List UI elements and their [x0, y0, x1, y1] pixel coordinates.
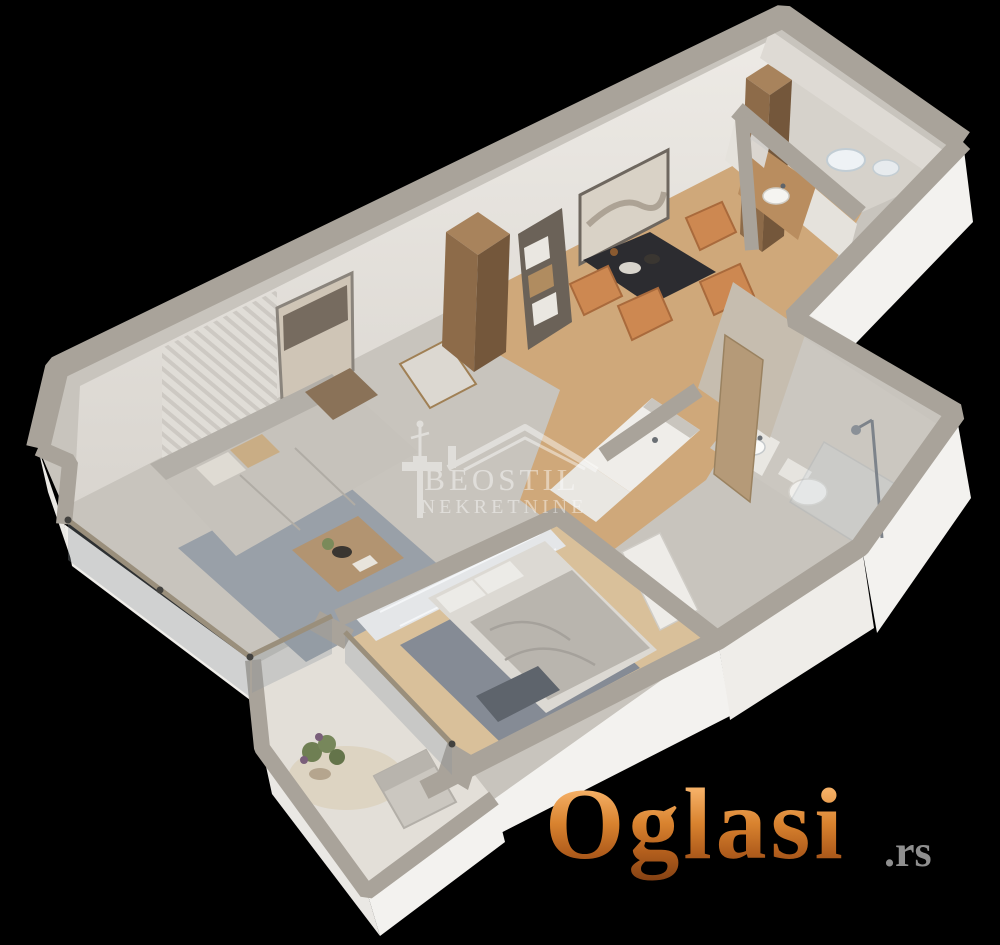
coffee-table-tray — [332, 546, 352, 558]
watermark-title: BEOSTIL — [424, 462, 579, 497]
plant-flower-2 — [315, 733, 323, 741]
plant-pot — [309, 768, 331, 780]
window-post-4 — [449, 741, 456, 748]
sink-faucet — [758, 436, 763, 441]
hall-partition-stub — [742, 118, 752, 250]
plant-flower-1 — [300, 756, 308, 764]
table-vase — [610, 248, 618, 256]
real-estate-listing-image: BEOSTIL NEKRETNINE Oglasi .rs — [0, 0, 1000, 945]
floor-plan-render: BEOSTIL NEKRETNINE Oglasi .rs — [0, 0, 1000, 945]
water-heater-small — [873, 160, 899, 176]
table-bowl — [644, 254, 660, 264]
site-logo-text: Oglasi — [545, 768, 847, 881]
watermark-subtitle: NEKRETNINE — [421, 496, 588, 518]
table-plate — [619, 262, 641, 274]
window-post-3 — [247, 654, 254, 661]
window-post-1 — [65, 517, 72, 524]
wardrobe-side — [474, 234, 510, 372]
site-logo-tld: .rs — [884, 827, 932, 876]
laundry-sink — [763, 188, 789, 204]
plant-leaves-3 — [329, 749, 345, 765]
laundry-faucet — [781, 184, 786, 189]
window-post-2 — [157, 587, 164, 594]
coffee-table-plant — [322, 538, 334, 550]
water-heater-boiler — [827, 149, 865, 171]
kitchen-faucet — [652, 437, 658, 443]
shower-head — [851, 425, 861, 435]
